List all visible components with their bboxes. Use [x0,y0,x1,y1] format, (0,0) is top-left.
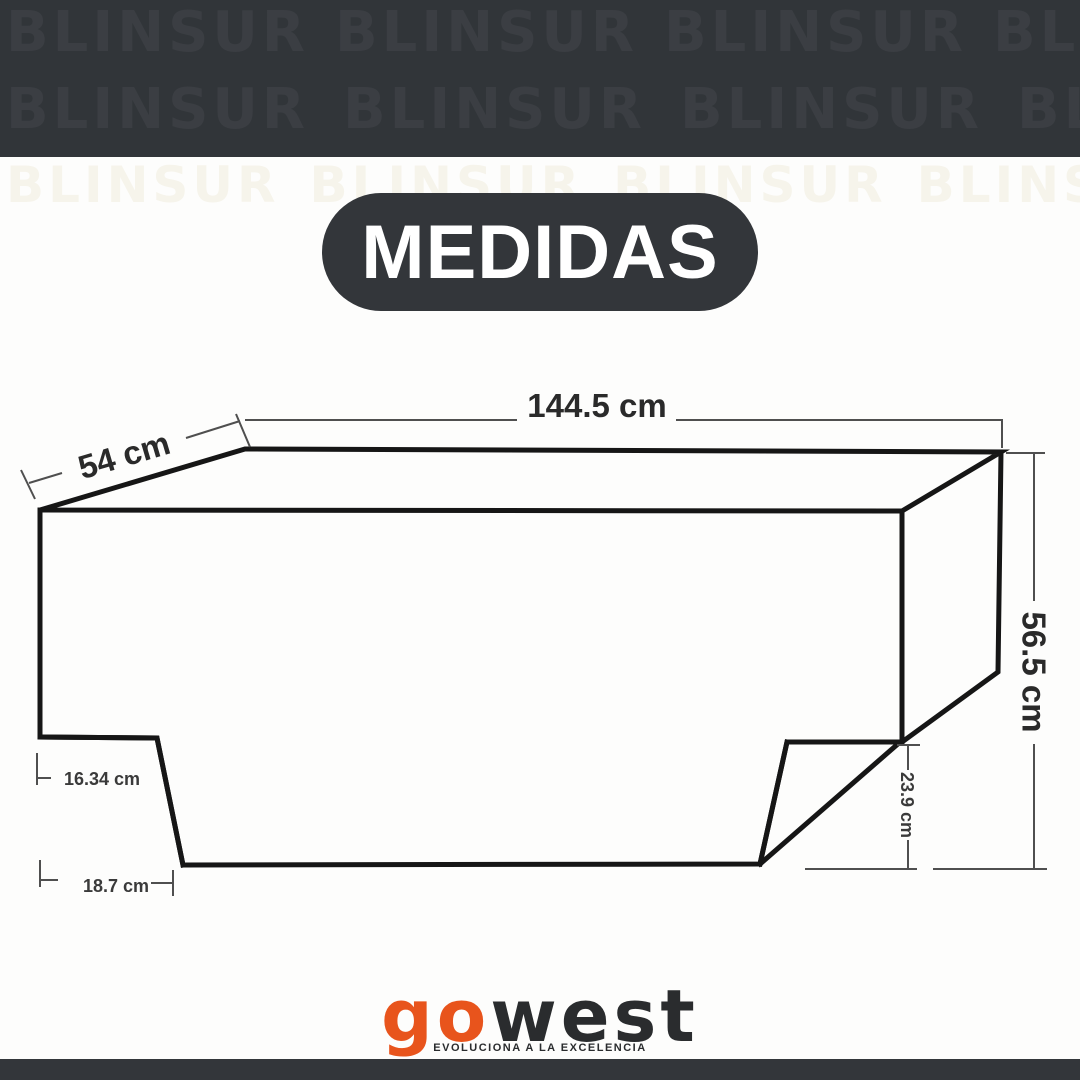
dim-tick-left-bottom-right [151,870,173,896]
box-top-face [40,449,1001,511]
dim-line-top-width [245,420,1002,448]
measurement-diagram: 144.5 cm 54 cm 56.5 cm 23.9 cm 16.34 cm … [0,0,1080,1080]
dim-tick-left-step [37,753,51,785]
dim-tick-depth-left [21,470,35,499]
dim-label-height: 56.5 cm [1016,611,1053,732]
footer-band [0,1059,1080,1080]
box-front-left-step [40,737,183,865]
dim-label-top-width: 144.5 cm [527,387,666,424]
box-right-face-edge [902,452,1001,742]
dim-tick-top-width-left [236,414,250,447]
dim-label-right-drop: 23.9 cm [897,772,917,838]
dim-tick-left-bottom [40,860,58,887]
dim-label-left-step: 16.34 cm [64,769,140,789]
dim-label-left-bottom: 18.7 cm [83,876,149,896]
footer-tagline: EVOLUCIONA A LA EXCELENCIA [0,1042,1080,1054]
